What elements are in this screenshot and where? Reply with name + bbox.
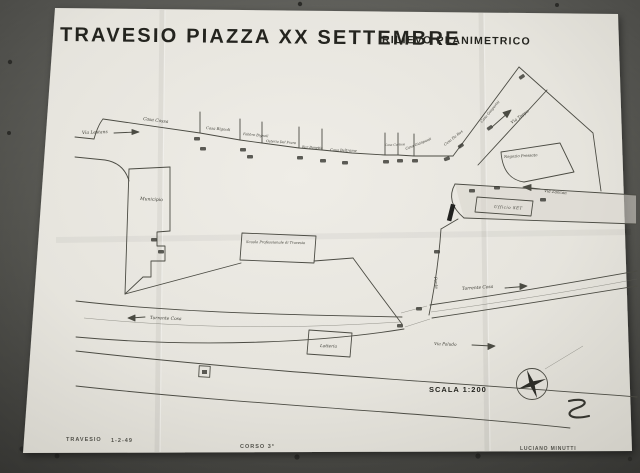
street-label-via-paludo: Via Paludo xyxy=(434,341,457,347)
photo-of-plan: TRAVESIO PIAZZA XX SETTEMBRE RILIEVO PLA… xyxy=(0,0,640,473)
scale-label: SCALA 1:200 xyxy=(429,385,487,394)
plan-svg: TRAVESIO PIAZZA XX SETTEMBRE RILIEVO PLA… xyxy=(0,0,640,473)
footer-date: 1-2-49 xyxy=(111,438,133,444)
footer-course: CORSO 3° xyxy=(240,444,275,450)
building-label-latteria: Latteria xyxy=(319,343,338,349)
screw-dot xyxy=(555,3,559,7)
street-label-via-lestans: Via Lestans xyxy=(82,130,109,136)
screw-dot xyxy=(298,2,302,6)
screw-dot xyxy=(8,60,12,64)
screw-dot xyxy=(475,453,480,458)
screw-dot xyxy=(7,131,11,135)
footer-place: TRAVESIO xyxy=(66,437,102,443)
screw-dot xyxy=(628,457,632,461)
screw-dot xyxy=(55,454,60,459)
building-label-municipio: Municipio xyxy=(139,196,163,203)
page-subtitle: RILIEVO PLANIMETRICO xyxy=(382,34,531,48)
title-block: TRAVESIO PIAZZA XX SETTEMBRE RILIEVO PLA… xyxy=(60,24,531,50)
footer-author: LUCIANO MINUTTI xyxy=(520,446,576,452)
screw-dot xyxy=(294,454,299,459)
building-label-casa-curtissi: Casa Curtissi xyxy=(385,142,405,147)
paper-sheet xyxy=(23,8,632,453)
